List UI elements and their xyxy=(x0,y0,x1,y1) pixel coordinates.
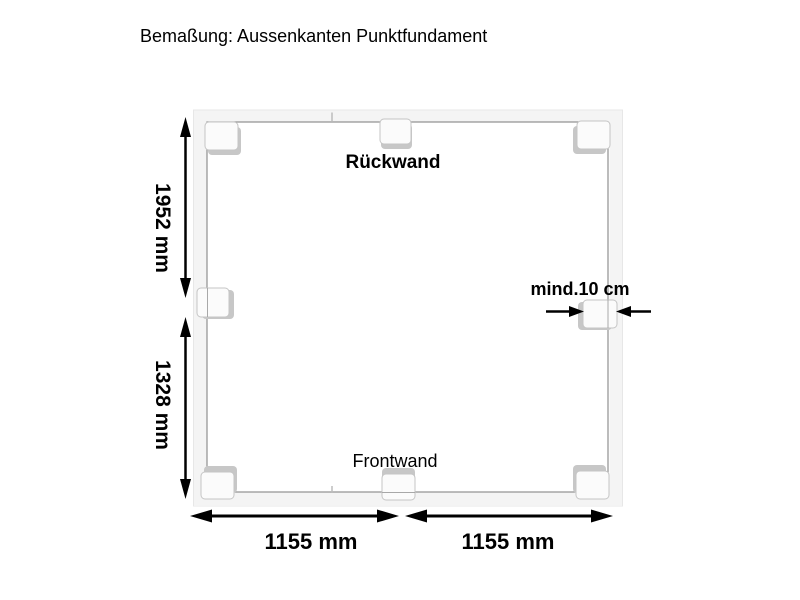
block-top-face xyxy=(576,471,609,499)
point-foundation-block-middle-right xyxy=(578,300,617,330)
arrow-down-icon xyxy=(180,479,191,499)
block-top-face xyxy=(205,122,238,150)
block-top-face xyxy=(382,474,415,500)
dimension-label-bottom-right: 1155 mm xyxy=(462,529,555,554)
block-top-face xyxy=(577,121,610,149)
arrow-right-icon xyxy=(591,510,613,523)
dimension-label-lower-height: 1328 mm xyxy=(151,360,174,450)
arrow-up-icon xyxy=(180,317,191,337)
point-foundation-block-top-middle xyxy=(380,119,412,149)
point-foundation-block-bottom-left xyxy=(201,466,237,499)
point-foundation-block-middle-left xyxy=(197,288,234,319)
arrow-up-icon xyxy=(180,117,191,137)
min-distance-label: mind.10 cm xyxy=(530,279,629,299)
point-foundation-block-bottom-middle xyxy=(382,468,415,500)
point-foundation-block-bottom-right xyxy=(573,465,609,499)
block-top-face xyxy=(197,288,229,317)
dimension-bottom-left-width: 1155 mm xyxy=(190,510,399,555)
foundation-dimension-diagram: Bemaßung: Aussenkanten Punktfundament xyxy=(0,0,800,600)
arrow-right-icon xyxy=(377,510,399,523)
dimension-label-upper-height: 1952 mm xyxy=(151,183,174,273)
dimension-upper-height: 1952 mm xyxy=(151,117,191,298)
point-foundation-block-top-left xyxy=(205,122,241,155)
page-title: Bemaßung: Aussenkanten Punktfundament xyxy=(140,26,487,46)
dimension-label-bottom-left: 1155 mm xyxy=(265,529,358,554)
back-wall-label: Rückwand xyxy=(345,152,440,173)
arrow-left-icon xyxy=(405,510,427,523)
block-top-face xyxy=(583,300,617,328)
arrow-left-icon xyxy=(190,510,212,523)
arrow-down-icon xyxy=(180,278,191,298)
dimension-lower-height: 1328 mm xyxy=(151,317,191,499)
point-foundation-block-top-right xyxy=(573,121,610,154)
block-top-face xyxy=(380,119,411,144)
block-top-face xyxy=(201,472,234,499)
front-wall-label: Frontwand xyxy=(352,451,437,471)
dimension-bottom-right-width: 1155 mm xyxy=(405,510,613,555)
diagram-canvas: Bemaßung: Aussenkanten Punktfundament xyxy=(0,0,800,600)
frame-outline xyxy=(207,122,608,492)
